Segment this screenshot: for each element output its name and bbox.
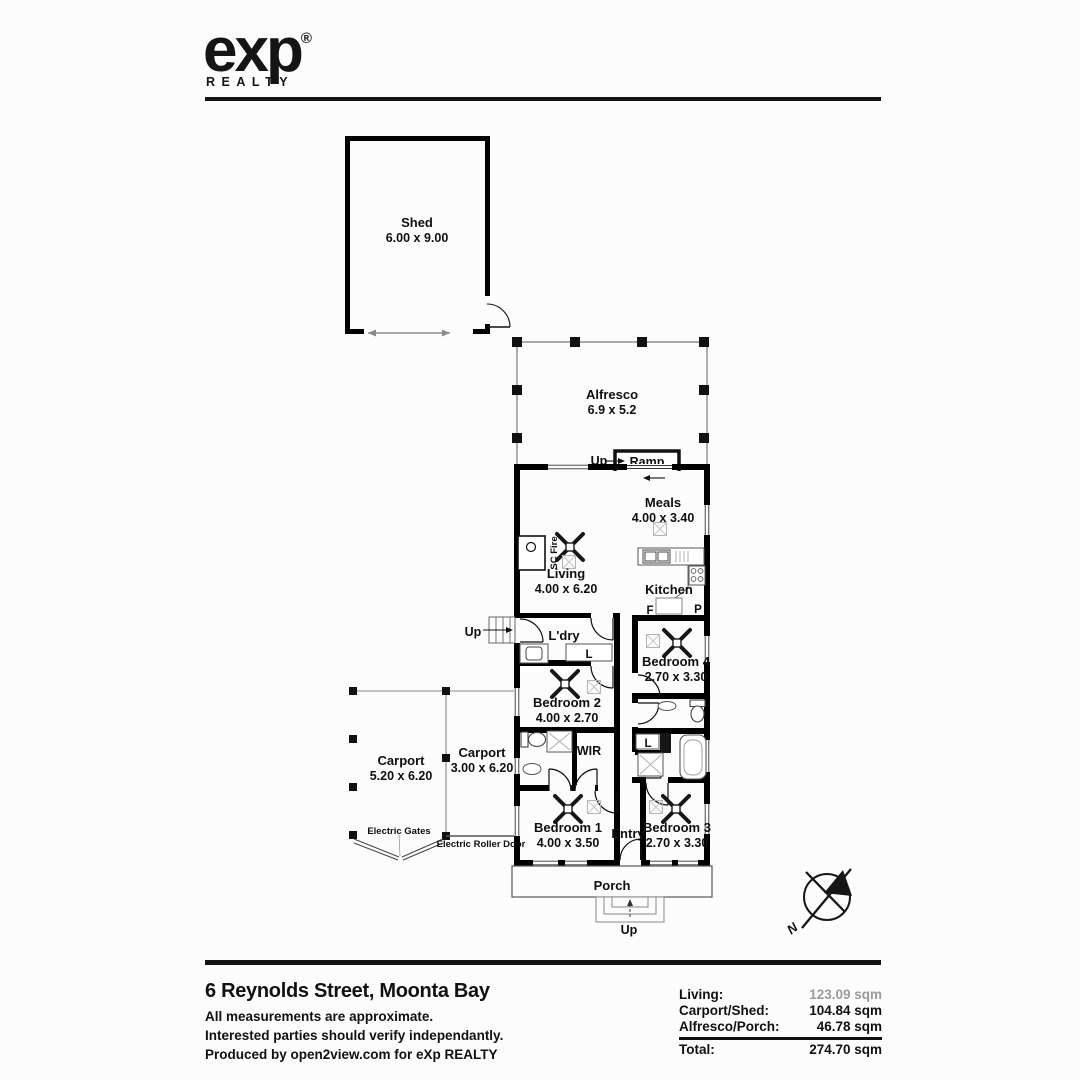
kitchen-bench <box>638 548 704 565</box>
shed-roller-opening-arrow <box>368 330 450 337</box>
disclaimer-line-2: Interested parties should verify indepen… <box>205 1026 503 1045</box>
side-up-label: Up <box>465 625 482 639</box>
electric-roller-door-label: Electric Roller Door <box>437 839 526 850</box>
sliding-door <box>627 464 672 481</box>
disclaimer-line-1: All measurements are approximate. <box>205 1007 503 1026</box>
bedroom2-label: Bedroom 2 <box>533 695 601 710</box>
bedroom1-dims: 4.00 x 3.50 <box>537 836 600 850</box>
floorplan-page: exp® REALTY <box>0 0 1080 1080</box>
area-label: Alfresco/Porch: <box>679 1019 780 1035</box>
porch-structure: Porch Up <box>512 866 712 937</box>
area-value: 274.70 sqm <box>809 1042 882 1058</box>
porch-label: Porch <box>594 878 631 893</box>
compass-north-label: N <box>784 919 801 937</box>
electric-gates-label: Electric Gates <box>367 826 430 837</box>
footer-address-block: 6 Reynolds Street, Moonta Bay All measur… <box>205 980 503 1064</box>
linen-label: L <box>585 649 592 661</box>
electric-gates-icon <box>354 835 443 860</box>
kitchen-cupboard <box>656 598 682 614</box>
bathtub-icon <box>680 735 706 779</box>
alfresco-dims: 6.9 x 5.2 <box>588 403 637 417</box>
area-label: Carport/Shed: <box>679 1003 769 1019</box>
wc-basin-icon <box>658 702 676 711</box>
toilet-icon <box>521 732 546 747</box>
bathroom-shower-icon <box>638 753 663 776</box>
floorplan-drawing: Shed 6.00 x 9.00 Alfresco 6.9 x 5.2 Ramp… <box>0 0 1080 1080</box>
area-value: 104.84 sqm <box>809 1003 882 1019</box>
area-row-alfresco-porch: Alfresco/Porch: 46.78 sqm <box>679 1019 882 1035</box>
laundry-label: L'dry <box>548 628 580 643</box>
living-dims: 4.00 x 6.20 <box>535 582 598 596</box>
meals-dims: 4.00 x 3.40 <box>632 511 695 525</box>
credit-line: Produced by open2view.com for eXp REALTY <box>205 1045 503 1064</box>
bedroom3-dims: 2.70 x 3.30 <box>646 836 709 850</box>
area-value: 123.09 sqm <box>809 987 882 1003</box>
entry-label: Entry <box>611 826 645 841</box>
shed-dims: 6.00 x 9.00 <box>386 231 449 245</box>
bath-linen-label: L <box>644 738 651 750</box>
area-row-carport-shed: Carport/Shed: 104.84 sqm <box>679 1003 882 1019</box>
bedroom3-label: Bedroom 3 <box>643 820 711 835</box>
area-label: Total: <box>679 1042 715 1058</box>
carport-small-dims: 3.00 x 6.20 <box>451 761 514 775</box>
area-value: 46.78 sqm <box>817 1019 882 1035</box>
kitchen-label: Kitchen <box>645 582 693 597</box>
bedroom2-dims: 4.00 x 2.70 <box>536 711 599 725</box>
ensuite-fixtures <box>521 731 572 775</box>
sc-fire: SC Fire <box>518 536 560 570</box>
fridge-label: F <box>646 605 653 617</box>
bedroom4-dims: 2.70 x 3.30 <box>645 670 708 684</box>
bathroom-cupboard <box>660 733 671 753</box>
wc-toilet-icon <box>690 700 705 722</box>
area-table-divider <box>679 1037 882 1040</box>
alfresco-structure: Alfresco 6.9 x 5.2 Ramp Up <box>512 337 709 471</box>
porch-up-label: Up <box>621 923 638 937</box>
wc-fixtures <box>658 700 705 722</box>
basin-icon <box>523 764 541 775</box>
bedroom1-label: Bedroom 1 <box>534 820 602 835</box>
meals-label: Meals <box>645 495 681 510</box>
wir-label: WIR <box>577 744 601 758</box>
area-summary-table: Living: 123.09 sqm Carport/Shed: 104.84 … <box>679 987 882 1058</box>
carport-structure: Carport 5.20 x 6.20 Carport 3.00 x 6.20 … <box>349 687 526 860</box>
carport-small-label: Carport <box>459 745 507 760</box>
area-label: Living: <box>679 987 723 1003</box>
area-row-total: Total: 274.70 sqm <box>679 1042 882 1058</box>
living-label: Living <box>547 566 585 581</box>
sc-fire-label: SC Fire <box>549 536 560 569</box>
carport-large-dims: 5.20 x 6.20 <box>370 769 433 783</box>
pantry-label: P <box>694 604 702 616</box>
property-address: 6 Reynolds Street, Moonta Bay <box>205 980 503 1003</box>
compass-icon: N <box>784 869 852 937</box>
shed-door <box>487 304 510 327</box>
shed-label: Shed <box>401 215 433 230</box>
entry-steps-side: Up <box>465 617 515 643</box>
laundry-fixtures <box>520 644 612 663</box>
carport-large-label: Carport <box>378 753 426 768</box>
footer-rule <box>205 960 881 965</box>
shower-icon <box>547 731 572 752</box>
bedroom4-label: Bedroom 4 <box>642 654 711 669</box>
area-row-living: Living: 123.09 sqm <box>679 987 882 1003</box>
alfresco-label: Alfresco <box>586 387 638 402</box>
shed-structure: Shed 6.00 x 9.00 <box>345 136 510 337</box>
